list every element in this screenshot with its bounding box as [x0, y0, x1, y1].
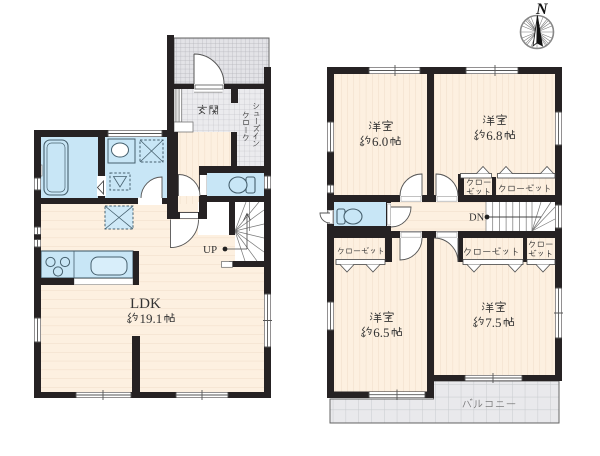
svg-text:19.1: 19.1	[140, 311, 163, 326]
svg-text:UP: UP	[203, 244, 217, 256]
svg-text:LDK: LDK	[130, 296, 161, 312]
svg-text:7.5: 7.5	[485, 315, 501, 330]
svg-text:6.0: 6.0	[372, 134, 388, 149]
svg-text:DN: DN	[469, 213, 485, 224]
svg-text:6.5: 6.5	[373, 325, 389, 340]
svg-text:N: N	[535, 1, 549, 18]
svg-text:6.8: 6.8	[486, 128, 502, 143]
